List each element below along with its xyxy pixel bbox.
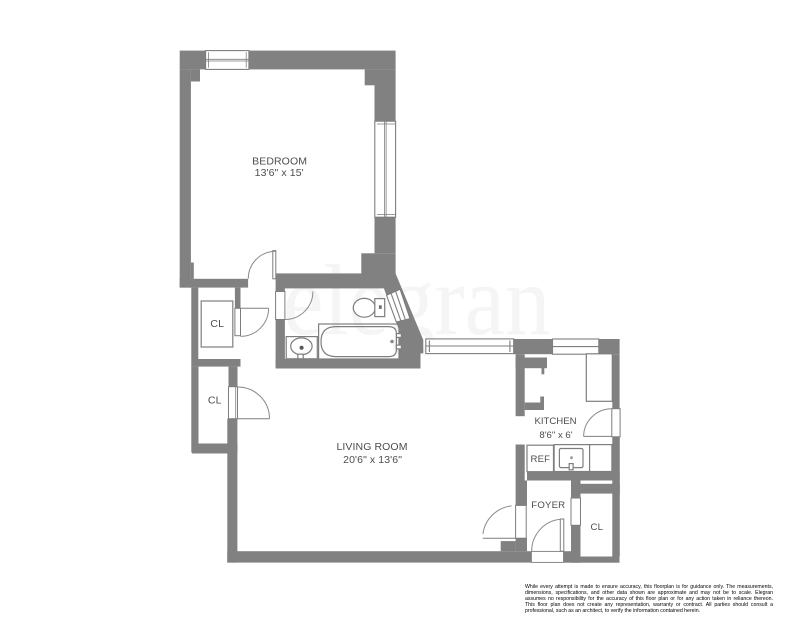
svg-text:20'6" x 13'6": 20'6" x 13'6" [343, 454, 402, 466]
svg-text:CL: CL [210, 318, 224, 330]
svg-text:REF: REF [531, 454, 551, 465]
svg-text:LIVING ROOM: LIVING ROOM [336, 441, 407, 453]
svg-text:BEDROOM: BEDROOM [252, 155, 307, 167]
svg-text:FOYER: FOYER [531, 500, 565, 511]
svg-text:KITCHEN: KITCHEN [534, 416, 576, 427]
svg-text:CL: CL [208, 395, 222, 407]
svg-text:8'6" x 6': 8'6" x 6' [539, 430, 572, 441]
svg-text:13'6" x 15': 13'6" x 15' [255, 167, 304, 179]
svg-text:CL: CL [590, 522, 603, 533]
